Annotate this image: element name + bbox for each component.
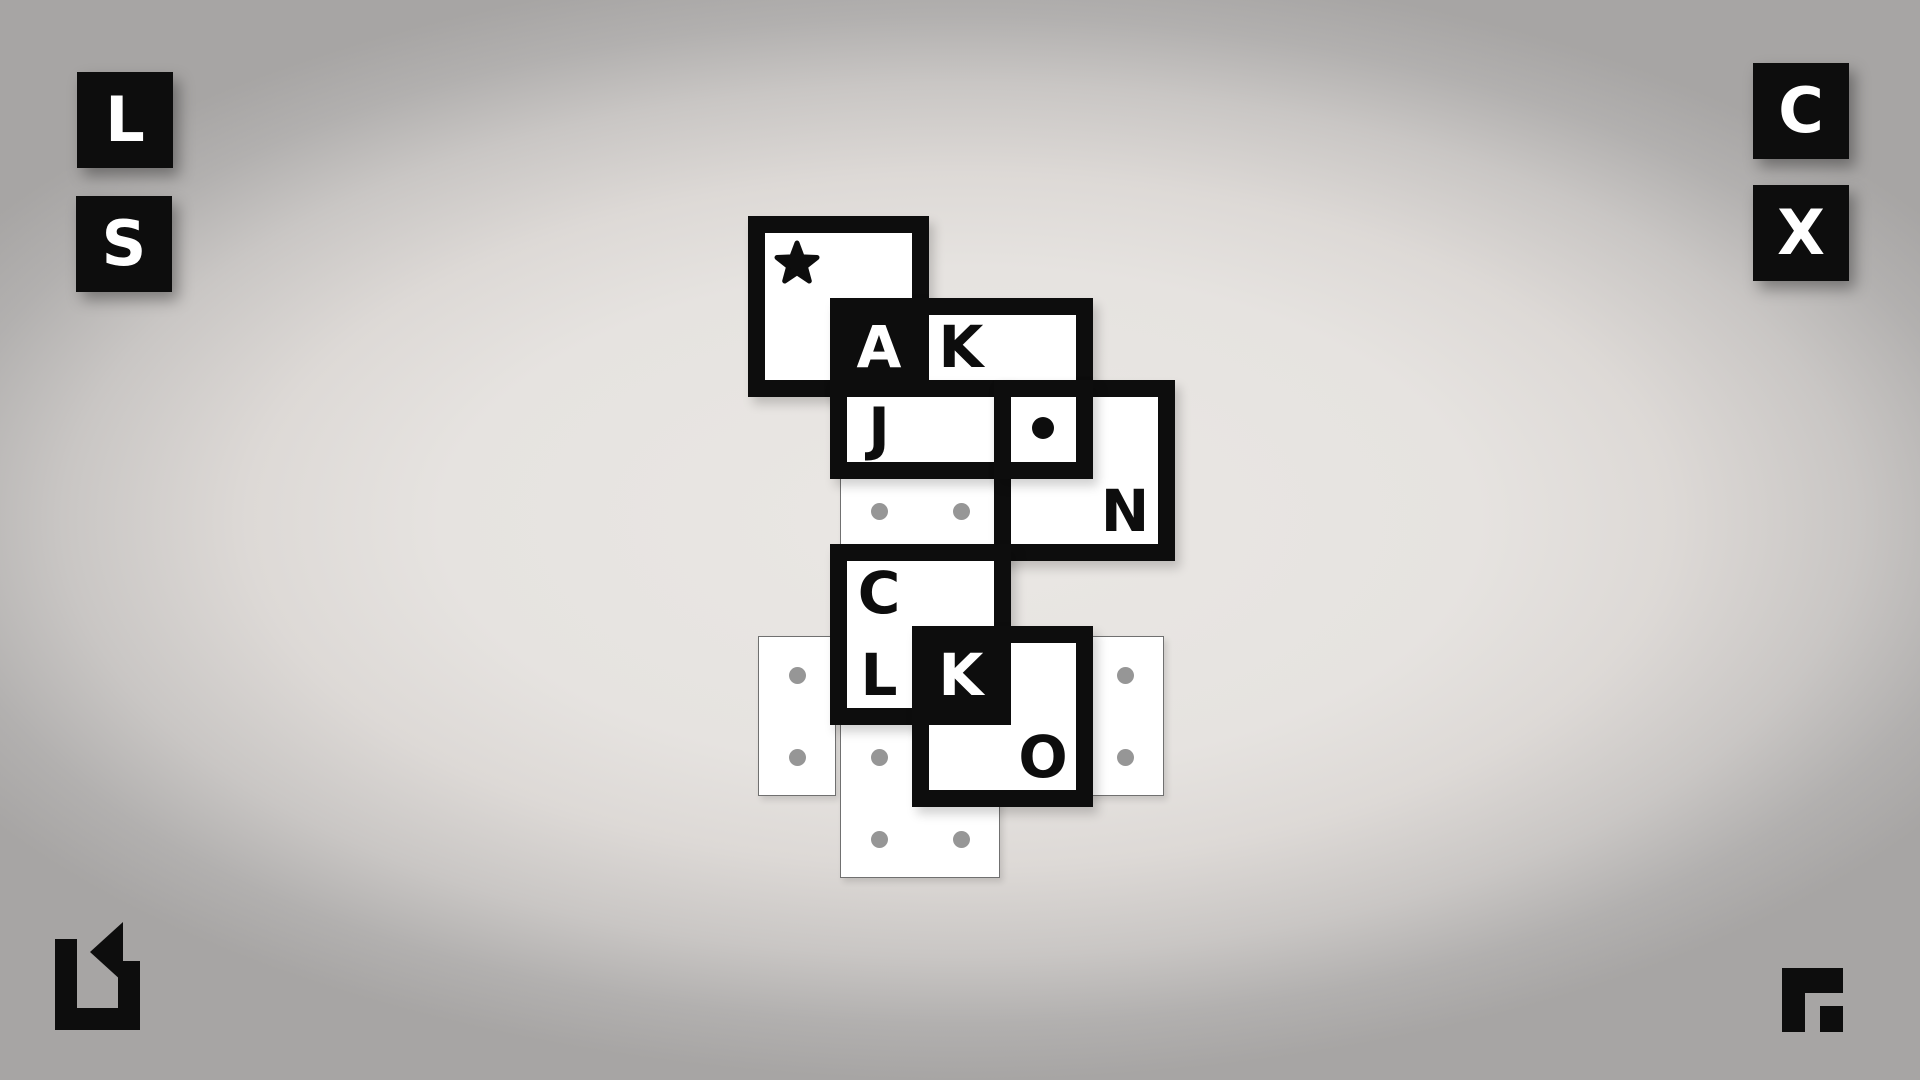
cell-letter-a[interactable]: A bbox=[838, 306, 920, 388]
gray-dot bbox=[789, 749, 806, 766]
game-screen: L S C X AKJNCLKO bbox=[0, 0, 1920, 1080]
button-c[interactable]: C bbox=[1753, 63, 1849, 159]
gray-dot bbox=[953, 831, 970, 848]
gray-dot bbox=[871, 503, 888, 520]
button-x[interactable]: X bbox=[1753, 185, 1849, 281]
gray-dot bbox=[789, 667, 806, 684]
button-s[interactable]: S bbox=[76, 196, 172, 292]
tile-bg-left bbox=[758, 636, 836, 796]
developer-logo-icon bbox=[1782, 968, 1843, 1036]
cell-letter-j[interactable]: J bbox=[838, 388, 920, 470]
gray-dot bbox=[871, 831, 888, 848]
gray-dot bbox=[953, 503, 970, 520]
gray-dot bbox=[1117, 749, 1134, 766]
cell-letter-k[interactable]: K bbox=[920, 306, 1002, 388]
tile-bg-right bbox=[1086, 636, 1164, 796]
cell-letter-l[interactable]: L bbox=[838, 634, 920, 716]
button-l[interactable]: L bbox=[77, 72, 173, 168]
cell-letter-c[interactable]: C bbox=[838, 552, 920, 634]
star-icon[interactable] bbox=[773, 240, 821, 288]
black-dot-icon[interactable] bbox=[1032, 417, 1054, 439]
undo-button[interactable] bbox=[55, 922, 140, 1034]
cell-letter-n[interactable]: N bbox=[1084, 470, 1166, 552]
cell-letter-o[interactable]: O bbox=[1002, 716, 1084, 798]
gray-dot bbox=[1117, 667, 1134, 684]
undo-arrow-icon bbox=[55, 1015, 140, 1034]
gray-dot bbox=[871, 749, 888, 766]
cell-letter-k[interactable]: K bbox=[920, 634, 1002, 716]
tile-bg-dots-row bbox=[840, 472, 1000, 550]
